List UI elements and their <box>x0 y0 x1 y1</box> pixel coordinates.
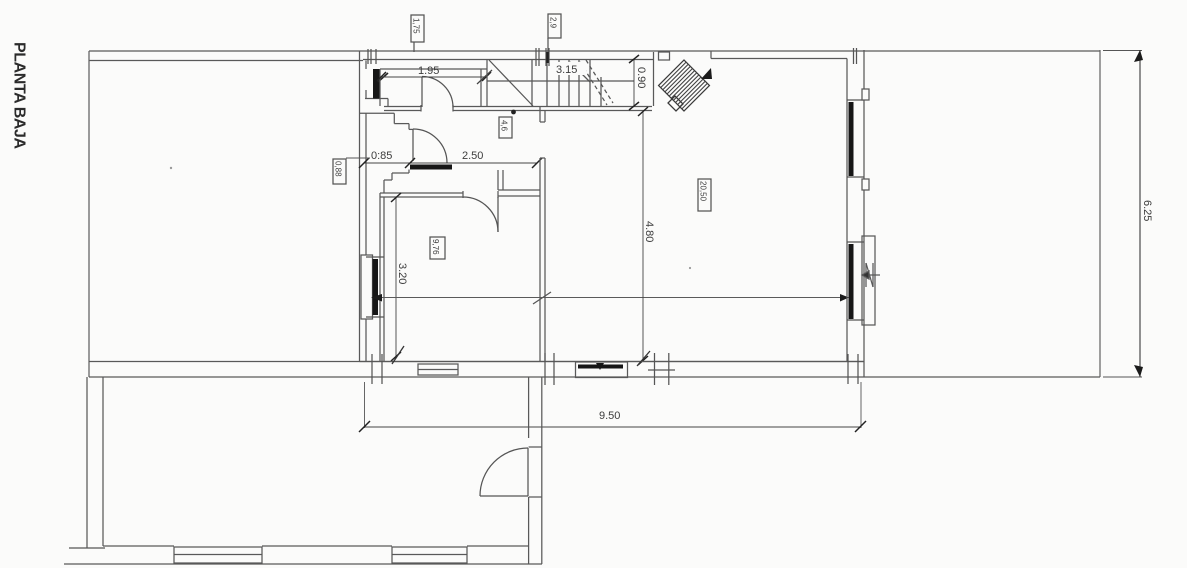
svg-text:0.90: 0.90 <box>635 67 647 88</box>
svg-text:3.20: 3.20 <box>396 263 408 284</box>
svg-text:4,6: 4,6 <box>500 120 509 132</box>
svg-text:2.50: 2.50 <box>462 150 483 162</box>
svg-text:1.95: 1.95 <box>418 65 439 77</box>
svg-text:20,50: 20,50 <box>699 181 708 202</box>
svg-text:PLANTA BAJA: PLANTA BAJA <box>11 42 28 150</box>
svg-text:4.80: 4.80 <box>643 221 655 242</box>
svg-text:9,76: 9,76 <box>431 239 440 255</box>
svg-text:0,88: 0,88 <box>334 161 343 177</box>
svg-text:0:85: 0:85 <box>371 150 392 162</box>
svg-text:1,75: 1,75 <box>412 18 421 34</box>
svg-text:2,9: 2,9 <box>549 17 558 29</box>
svg-text:9.50: 9.50 <box>599 410 620 422</box>
svg-text:3.15: 3.15 <box>556 64 577 76</box>
svg-text:6.25: 6.25 <box>1141 200 1153 221</box>
